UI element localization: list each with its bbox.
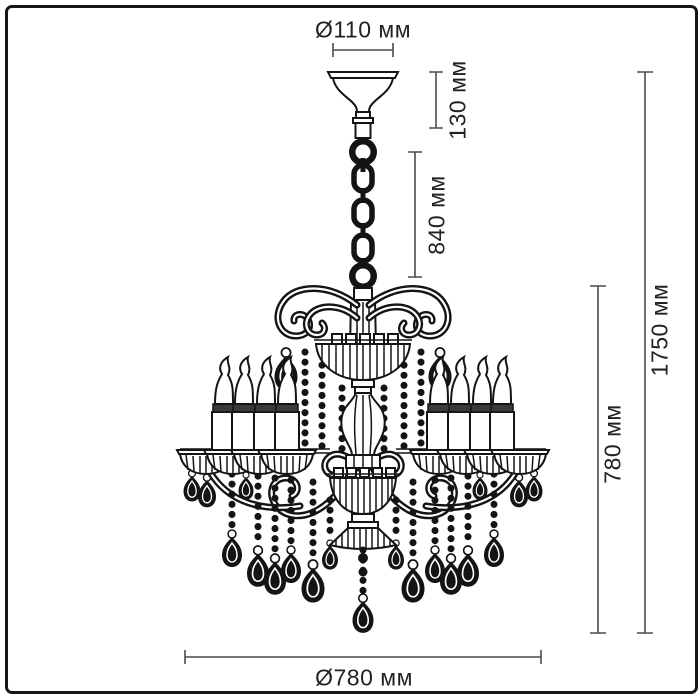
dim-line-canopy-height xyxy=(429,72,443,128)
dim-line-suspension xyxy=(408,152,422,277)
suspension-height-label: 840 мм xyxy=(424,175,451,254)
canopy-diameter-label: Ø110 мм xyxy=(315,17,411,44)
chandelier-drawing xyxy=(0,0,700,700)
bottom-pendant xyxy=(353,594,374,633)
dim-line-canopy-diameter xyxy=(333,43,393,57)
body-height-label: 780 мм xyxy=(600,404,627,483)
body-diameter-label: Ø780 мм xyxy=(315,665,413,692)
dim-line-body-diameter xyxy=(185,650,541,664)
dimension-diagram: Ø110 мм 130 мм 840 мм 780 мм 1750 мм Ø78… xyxy=(0,0,700,700)
chain xyxy=(349,138,377,300)
baluster xyxy=(341,393,384,468)
total-height-label: 1750 мм xyxy=(647,284,674,377)
canopy-height-label: 130 мм xyxy=(445,60,472,139)
canopy xyxy=(328,72,398,138)
center-bowl xyxy=(327,468,399,633)
crown-cup xyxy=(314,334,412,393)
